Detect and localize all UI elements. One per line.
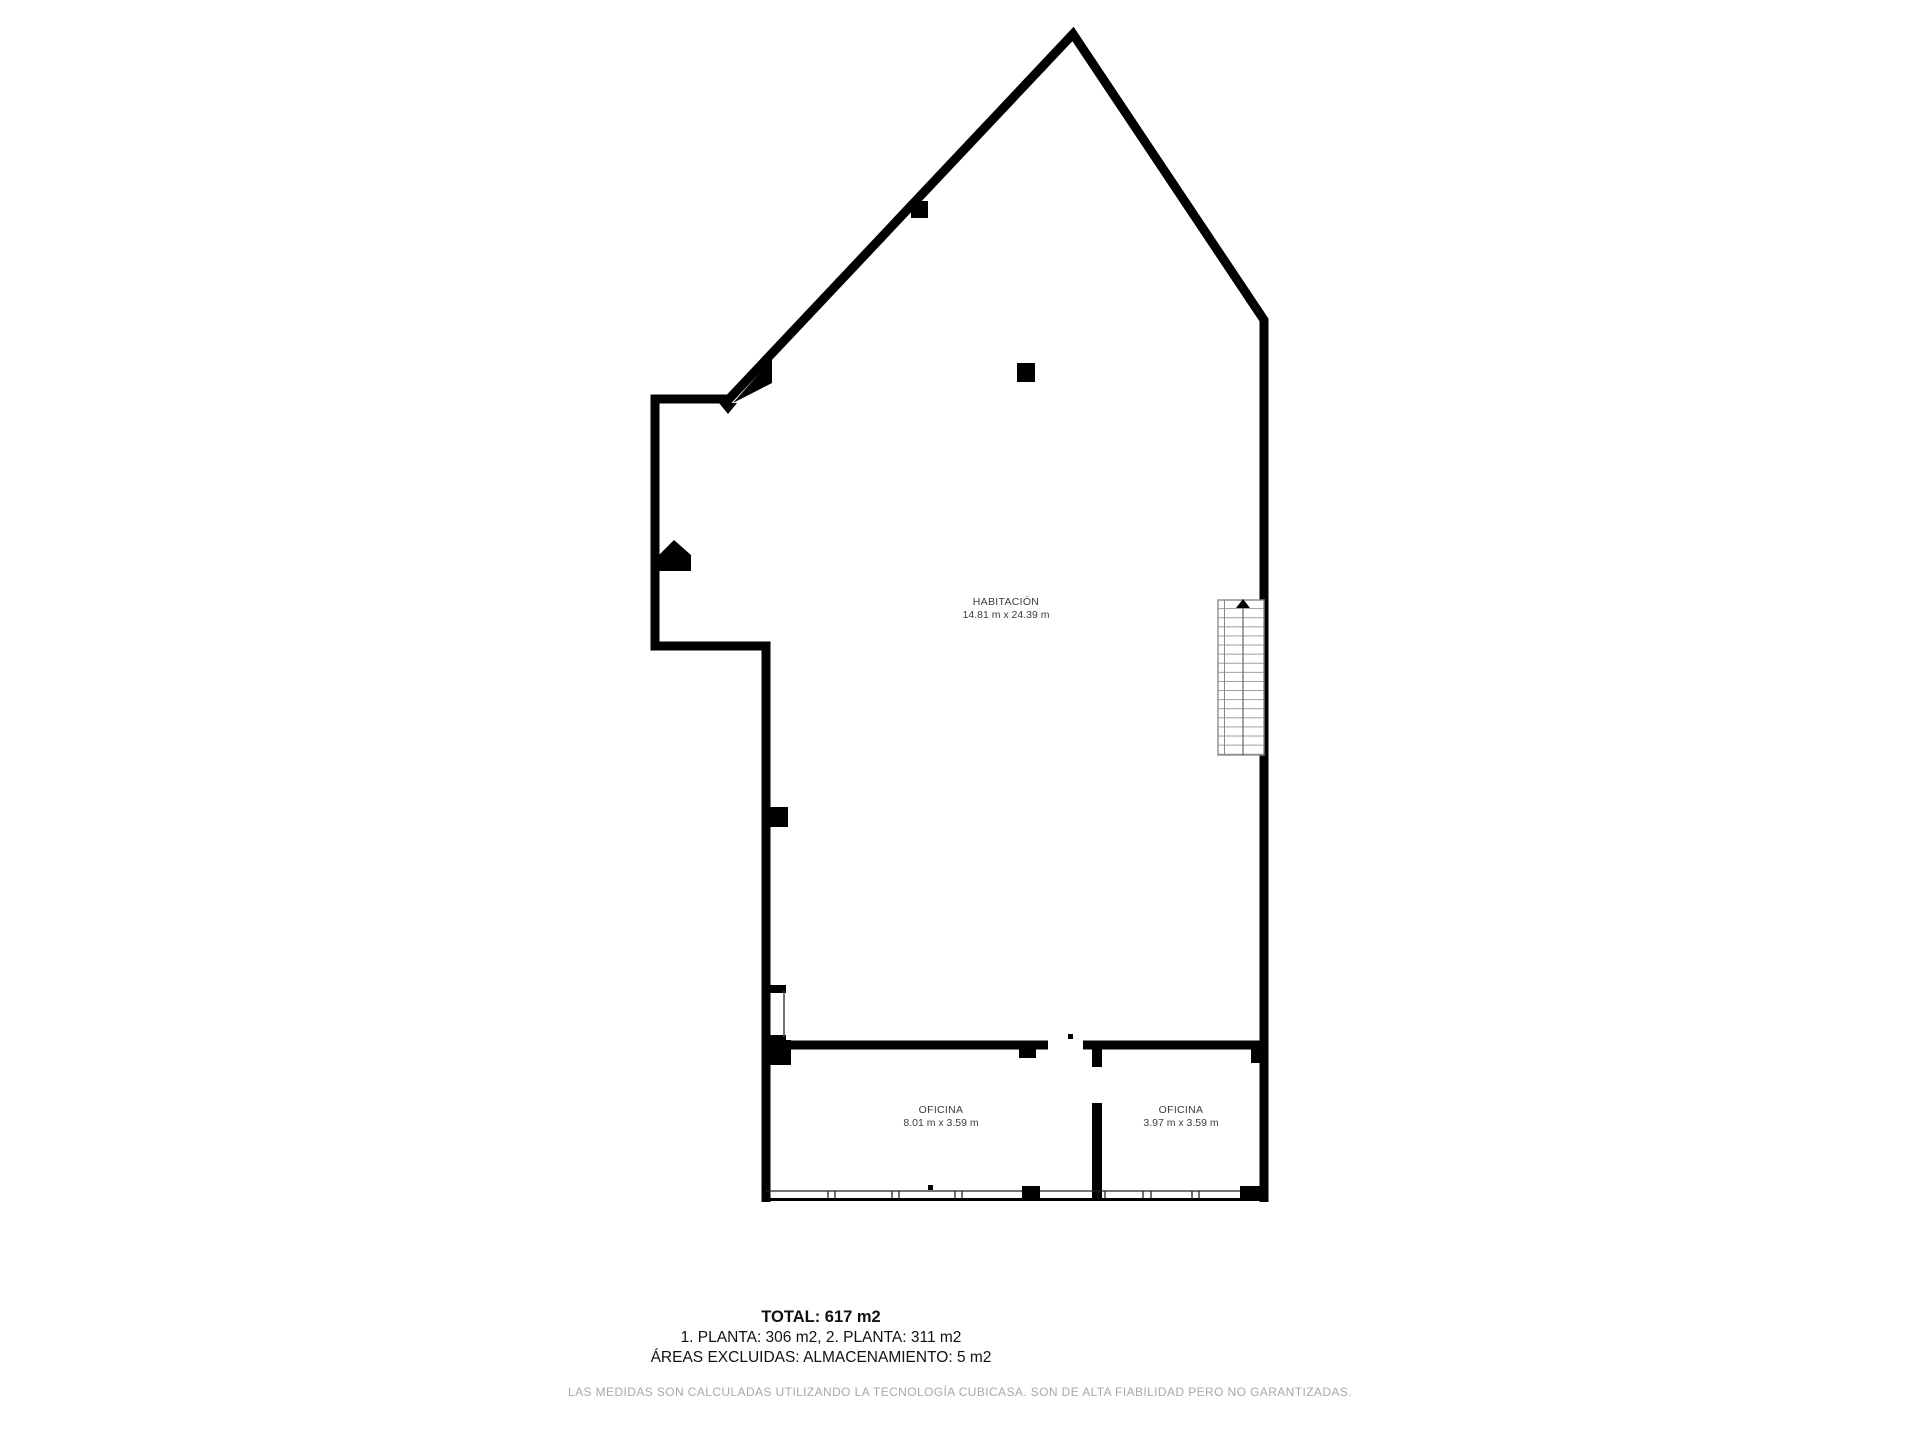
room-dimensions: 3.97 m x 3.59 m <box>1143 1117 1218 1130</box>
door-arrow-pentagon <box>658 540 691 571</box>
wall-junction-block-right <box>1251 1045 1267 1063</box>
floor-plan-page: HABITACIÓN 14.81 m x 24.39 m OFICINA 8.0… <box>0 0 1920 1440</box>
wall-segment-window-end <box>1240 1186 1268 1200</box>
wall-blocks <box>762 807 1267 1065</box>
wall-segment-in-window <box>1022 1186 1040 1200</box>
column <box>1017 363 1035 382</box>
window-mullions <box>828 1191 1199 1199</box>
room-name: OFICINA <box>1143 1104 1218 1117</box>
staircase <box>1218 599 1264 755</box>
door-wedge-corner <box>719 403 737 414</box>
columns <box>911 201 1035 382</box>
summary-plantas: 1. PLANTA: 306 m2, 2. PLANTA: 311 m2 <box>651 1328 992 1348</box>
column-on-diagonal-wall <box>911 201 928 218</box>
summary-total: TOTAL: 617 m2 <box>651 1306 992 1328</box>
wall-stub <box>1019 1043 1036 1058</box>
window-dot <box>928 1185 933 1190</box>
room-name: HABITACIÓN <box>963 596 1050 609</box>
door-wedge-diagonal <box>733 359 772 403</box>
wall-junction-block <box>762 1040 791 1065</box>
summary-excluidas: ÁREAS EXCLUIDAS: ALMACENAMIENTO: 5 m2 <box>651 1348 992 1368</box>
door-dot <box>1068 1034 1073 1039</box>
wall-pilaster <box>766 807 788 827</box>
door-markers <box>658 359 1073 1190</box>
outer-walls <box>655 34 1264 1202</box>
floor-plan-drawing <box>0 0 1920 1440</box>
disclaimer-text: LAS MEDIDAS SON CALCULADAS UTILIZANDO LA… <box>0 1385 1920 1399</box>
room-label-oficina-1: OFICINA 8.01 m x 3.59 m <box>903 1104 978 1130</box>
window-band <box>762 1186 1268 1200</box>
room-label-habitacion: HABITACIÓN 14.81 m x 24.39 m <box>963 596 1050 622</box>
room-name: OFICINA <box>903 1104 978 1117</box>
area-summary: TOTAL: 617 m2 1. PLANTA: 306 m2, 2. PLAN… <box>651 1306 992 1368</box>
room-dimensions: 14.81 m x 24.39 m <box>963 609 1050 622</box>
room-dimensions: 8.01 m x 3.59 m <box>903 1117 978 1130</box>
room-label-oficina-2: OFICINA 3.97 m x 3.59 m <box>1143 1104 1218 1130</box>
